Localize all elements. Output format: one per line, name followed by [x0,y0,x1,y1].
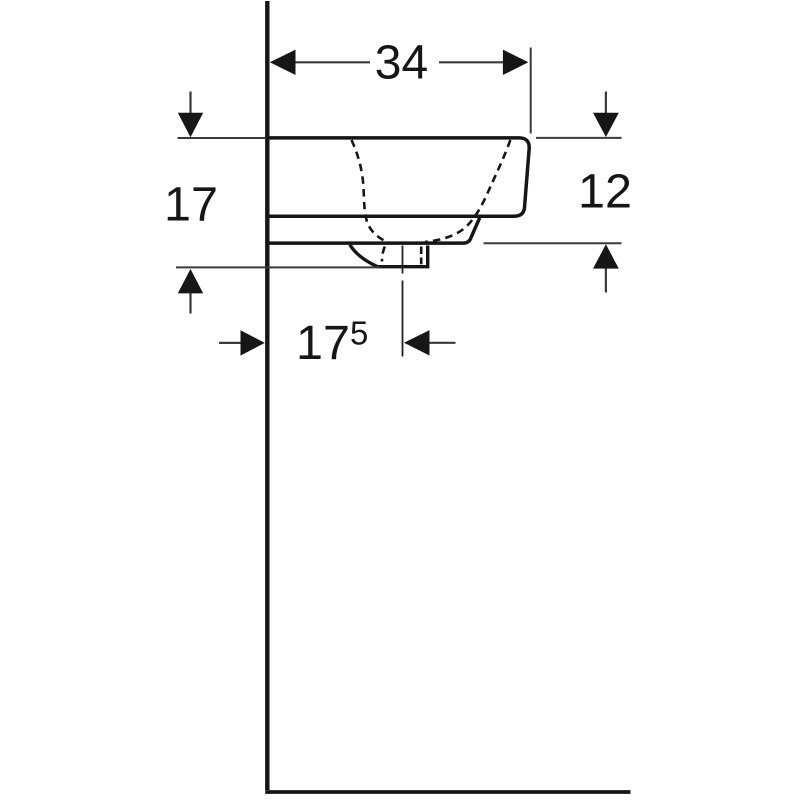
svg-text:34: 34 [375,36,428,89]
svg-text:17: 17 [164,178,218,232]
svg-text:12: 12 [578,165,632,219]
